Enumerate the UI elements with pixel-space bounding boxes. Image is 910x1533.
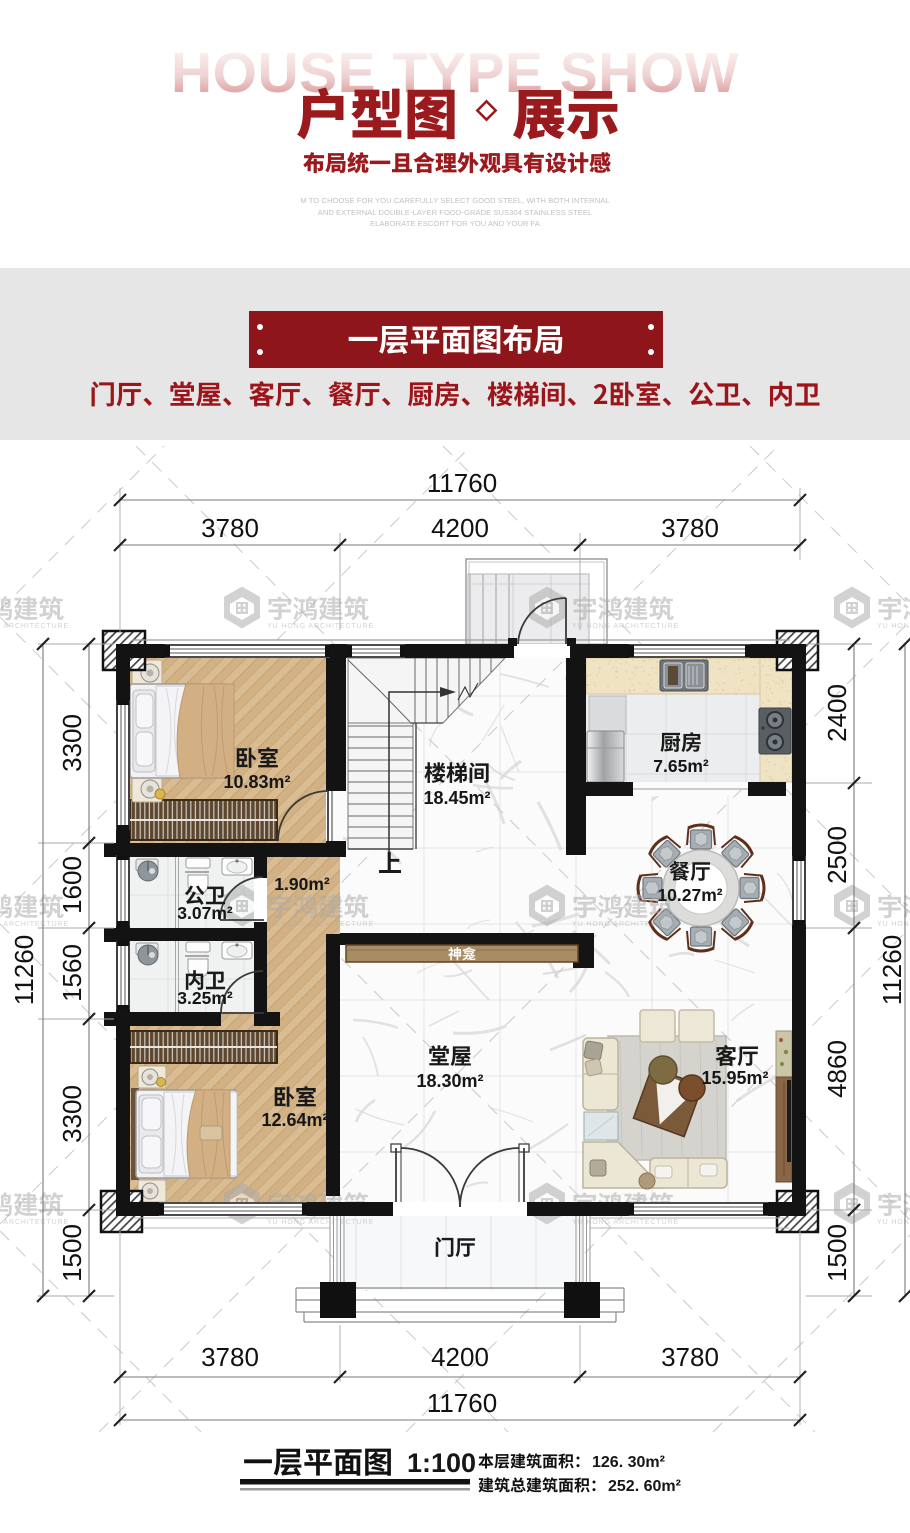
svg-text:1560: 1560 — [57, 944, 87, 1002]
svg-text:1:100: 1:100 — [407, 1448, 476, 1478]
svg-text:YU HONG ARCHITECTURE: YU HONG ARCHITECTURE — [267, 921, 374, 928]
svg-text:3780: 3780 — [201, 1342, 259, 1372]
svg-text:4860: 4860 — [822, 1040, 852, 1098]
svg-text:10.83m²: 10.83m² — [223, 772, 290, 792]
svg-text:YU HONG ARCHITECTURE: YU HONG ARCHITECTURE — [0, 921, 69, 928]
svg-text:YU HONG ARCHITECTURE: YU HONG ARCHITECTURE — [572, 623, 679, 630]
svg-text:3.25m²: 3.25m² — [177, 988, 233, 1008]
svg-text:11760: 11760 — [427, 1388, 497, 1418]
svg-text:15.95m²: 15.95m² — [701, 1068, 768, 1088]
svg-text:4200: 4200 — [431, 1342, 489, 1372]
svg-text:10.27m²: 10.27m² — [657, 885, 722, 905]
svg-text:3300: 3300 — [57, 714, 87, 772]
svg-text:11760: 11760 — [427, 468, 497, 498]
svg-text:1500: 1500 — [822, 1224, 852, 1282]
svg-text:11260: 11260 — [877, 935, 907, 1005]
svg-text:YU HONG ARCHITECTURE: YU HONG ARCHITECTURE — [0, 623, 69, 630]
svg-text:YU HONG ARCHITECTURE: YU HONG ARCHITECTURE — [267, 1219, 374, 1226]
svg-text:2400: 2400 — [822, 684, 852, 742]
svg-text:3780: 3780 — [661, 1342, 719, 1372]
svg-text:1500: 1500 — [57, 1224, 87, 1282]
svg-text:3.07m²: 3.07m² — [177, 903, 233, 923]
svg-text:YU HONG ARCHITECTURE: YU HONG ARCHITECTURE — [572, 1219, 679, 1226]
svg-text:252. 60m²: 252. 60m² — [608, 1478, 681, 1495]
svg-text:1600: 1600 — [57, 856, 87, 914]
svg-text:YU HONG ARCHITECTURE: YU HONG ARCHITECTURE — [267, 623, 374, 630]
svg-text:18.30m²: 18.30m² — [416, 1071, 483, 1091]
svg-text:3780: 3780 — [661, 513, 719, 543]
svg-text:YU HONG ARCHITECTURE: YU HONG ARCHITECTURE — [877, 623, 910, 630]
svg-text:7.65m²: 7.65m² — [653, 756, 709, 776]
svg-text:3780: 3780 — [201, 513, 259, 543]
svg-text:12.64m²: 12.64m² — [261, 1110, 328, 1130]
svg-text:2500: 2500 — [822, 826, 852, 884]
svg-text:11260: 11260 — [9, 935, 39, 1005]
svg-text:18.45m²: 18.45m² — [423, 788, 490, 808]
svg-text:126. 30m²: 126. 30m² — [592, 1454, 665, 1471]
svg-text:YU HONG ARCHITECTURE: YU HONG ARCHITECTURE — [572, 921, 679, 928]
svg-text:4200: 4200 — [431, 513, 489, 543]
svg-text:1.90m²: 1.90m² — [274, 874, 330, 894]
svg-text:3300: 3300 — [57, 1085, 87, 1143]
